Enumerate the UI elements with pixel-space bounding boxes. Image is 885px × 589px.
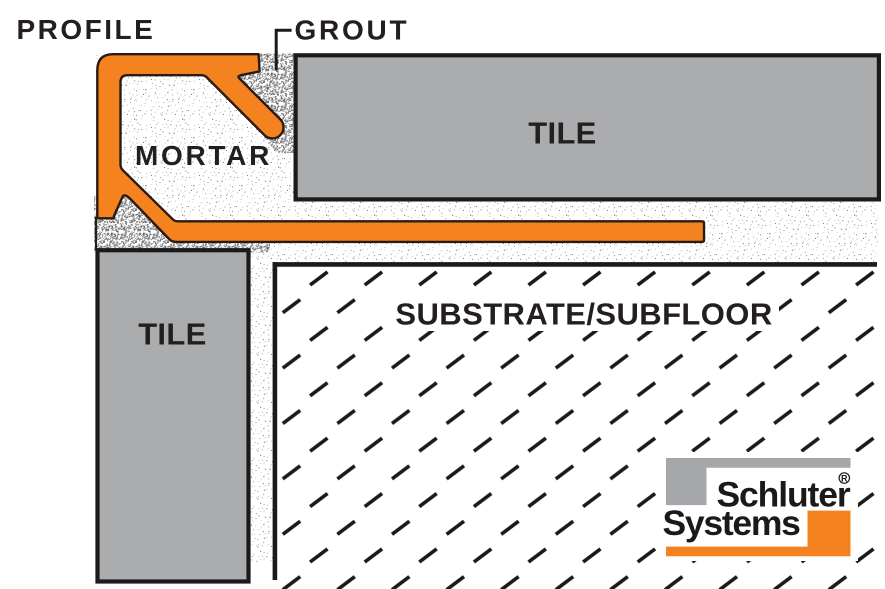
svg-text:MORTAR: MORTAR	[135, 140, 272, 171]
svg-text:Systems: Systems	[663, 503, 801, 543]
svg-text:PROFILE: PROFILE	[17, 14, 156, 45]
svg-text:SUBSTRATE/SUBFLOOR: SUBSTRATE/SUBFLOOR	[395, 296, 772, 331]
svg-text:GROUT: GROUT	[295, 15, 410, 46]
svg-text:TILE: TILE	[528, 116, 596, 151]
svg-text:R: R	[841, 473, 848, 483]
svg-text:TILE: TILE	[138, 317, 206, 352]
